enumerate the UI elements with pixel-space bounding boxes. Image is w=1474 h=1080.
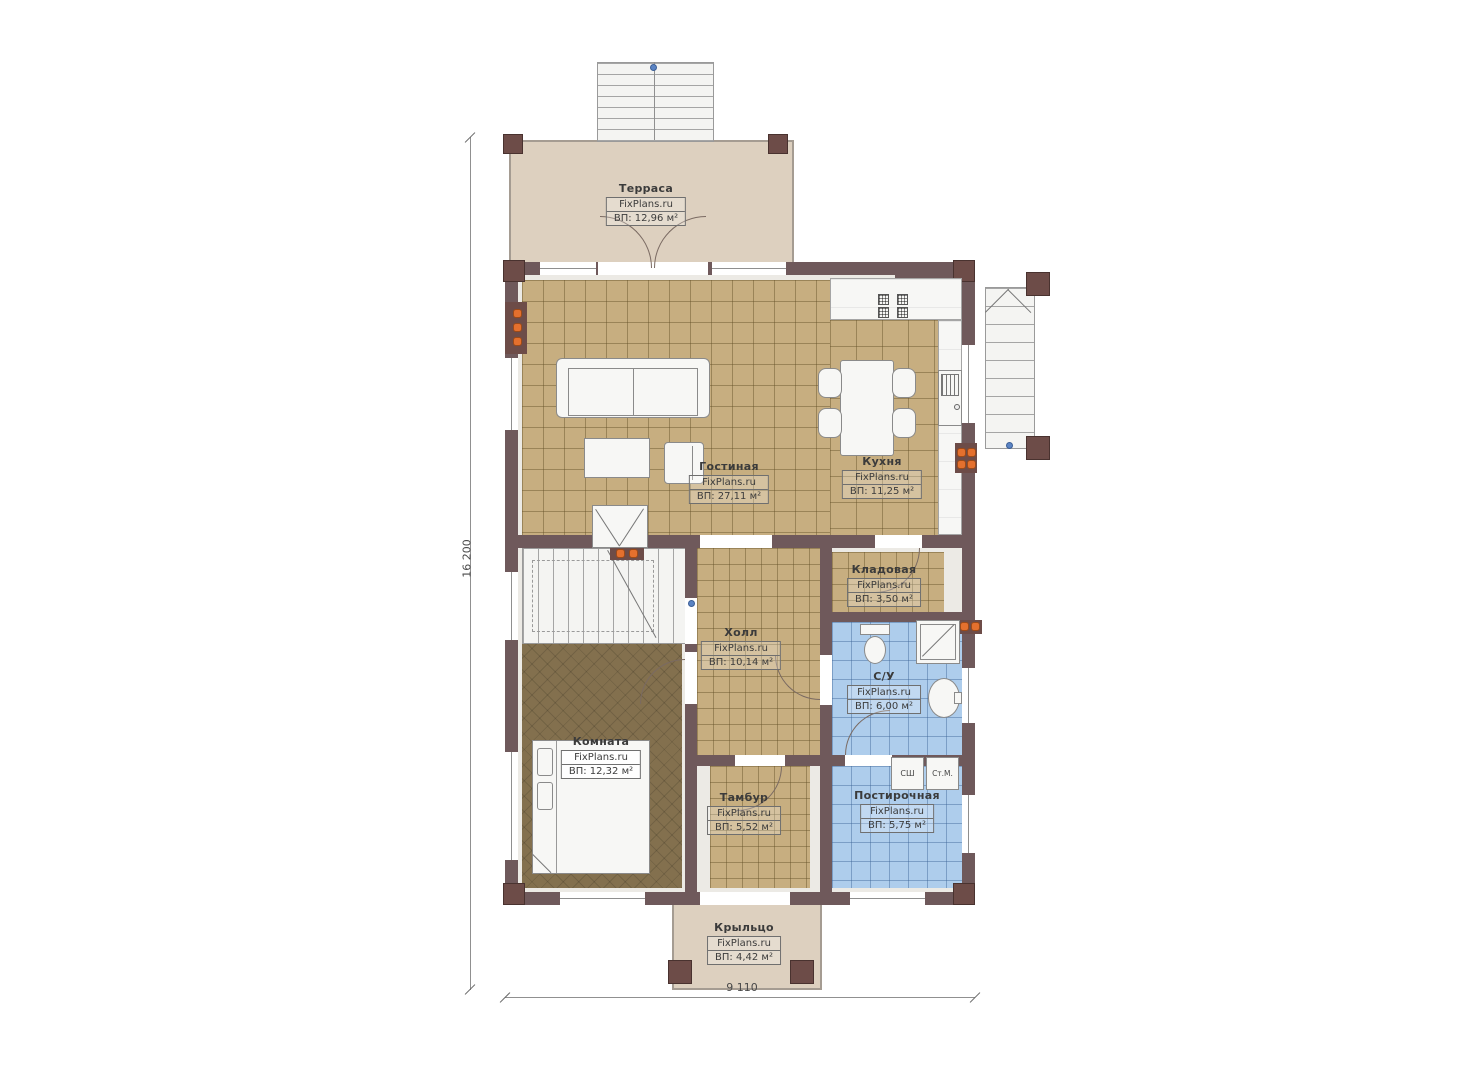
room-area: ВП: 11,25 м² — [843, 485, 921, 498]
radiator-dot — [960, 622, 969, 631]
watermark: FixPlans.ru — [848, 579, 920, 593]
dimension-label-width: 9 110 — [712, 981, 772, 994]
stair-marker-dot — [688, 600, 695, 607]
corner-post — [953, 883, 975, 905]
toilet-bowl — [864, 636, 886, 664]
room-name: Постирочная — [854, 789, 940, 802]
window — [540, 262, 596, 275]
watermark: FixPlans.ru — [708, 937, 780, 951]
stove-burner-icon — [878, 307, 889, 318]
room-name: Терраса — [606, 182, 686, 195]
dining-chair — [818, 408, 842, 438]
sofa-cushion-divider — [633, 368, 634, 416]
window — [962, 668, 975, 723]
window — [850, 892, 925, 905]
dryer-label: СШ — [900, 769, 914, 778]
room-label-bedroom: Комната FixPlans.ru ВП: 12,32 м² — [561, 735, 641, 779]
pillow — [537, 748, 553, 776]
floor-plan: СШ Ст.М. Терраса FixPlans.ru ВП: 12,96 м… — [0, 0, 1474, 1080]
corner-post — [503, 260, 525, 282]
dining-chair — [892, 408, 916, 438]
inner-wall-hall-right — [820, 548, 832, 892]
watermark: FixPlans.ru — [607, 198, 685, 212]
window — [962, 345, 975, 423]
watermark: FixPlans.ru — [562, 751, 640, 765]
watermark: FixPlans.ru — [848, 686, 920, 700]
room-label-living: Гостиная FixPlans.ru ВП: 27,11 м² — [689, 460, 769, 504]
room-label-hall: Холл FixPlans.ru ВП: 10,14 м² — [701, 626, 781, 670]
room-area: ВП: 6,00 м² — [848, 700, 920, 713]
room-label-kitchen: Кухня FixPlans.ru ВП: 11,25 м² — [842, 455, 922, 499]
porch-post — [790, 960, 814, 984]
watermark: FixPlans.ru — [690, 476, 768, 490]
dining-chair — [818, 368, 842, 398]
radiator-dot — [513, 337, 522, 346]
staircase-upper-flight — [532, 560, 654, 632]
window — [505, 358, 518, 430]
dimension-label-height: 16 200 — [461, 529, 474, 589]
radiator-dot — [616, 549, 625, 558]
radiator-dot — [513, 309, 522, 318]
porch-post — [668, 960, 692, 984]
external-stairs-post — [1026, 436, 1050, 460]
room-name: Крыльцо — [707, 921, 781, 934]
entry-door-opening — [700, 892, 790, 905]
watermark: FixPlans.ru — [861, 805, 933, 819]
window — [712, 262, 786, 275]
laundry-door-opening — [845, 755, 892, 766]
room-name: Холл — [701, 626, 781, 639]
room-label-tambur: Тамбур FixPlans.ru ВП: 5,52 м² — [707, 791, 781, 835]
room-name: Кухня — [842, 455, 922, 468]
kitchen-counter-top — [830, 278, 962, 320]
bed-headboard-line — [556, 741, 557, 873]
room-area: ВП: 10,14 м² — [702, 656, 780, 669]
radiator-dot — [957, 460, 966, 469]
dining-table — [840, 360, 894, 456]
tambur-door-opening — [735, 755, 785, 766]
bedroom-door-opening — [685, 652, 697, 704]
terrace-stairs-centerline — [654, 62, 655, 140]
window — [560, 892, 645, 905]
terrace-post — [503, 134, 523, 154]
external-stairs-post — [1026, 272, 1050, 296]
pillow — [537, 782, 553, 810]
hall-living-opening — [700, 535, 772, 548]
storage-door-opening — [875, 535, 922, 548]
room-area: ВП: 27,11 м² — [690, 490, 768, 503]
room-name: Тамбур — [707, 791, 781, 804]
radiator-dot — [967, 448, 976, 457]
entry-marker-dot — [650, 64, 657, 71]
radiator-dot — [629, 549, 638, 558]
room-name: Комната — [561, 735, 641, 748]
dimension-line-bottom — [505, 997, 975, 998]
terrace-stairs — [597, 62, 714, 142]
dining-chair — [892, 368, 916, 398]
coffee-table — [584, 438, 650, 478]
window — [505, 752, 518, 860]
shower-inner — [920, 624, 956, 660]
room-label-porch: Крыльцо FixPlans.ru ВП: 4,42 м² — [707, 921, 781, 965]
corner-post — [503, 883, 525, 905]
room-area: ВП: 4,42 м² — [708, 951, 780, 964]
stove-burner-icon — [897, 307, 908, 318]
kitchen-faucet — [954, 404, 960, 410]
window — [505, 572, 518, 640]
room-name: С/У — [847, 670, 921, 683]
room-label-storage: Кладовая FixPlans.ru ВП: 3,50 м² — [847, 563, 921, 607]
room-label-bathroom: С/У FixPlans.ru ВП: 6,00 м² — [847, 670, 921, 714]
room-label-laundry: Постирочная FixPlans.ru ВП: 5,75 м² — [854, 789, 940, 833]
room-label-terrace: Терраса FixPlans.ru ВП: 12,96 м² — [606, 182, 686, 226]
washer: Ст.М. — [926, 757, 959, 790]
terrace-post — [768, 134, 788, 154]
watermark: FixPlans.ru — [843, 471, 921, 485]
kitchen-counter-right — [938, 320, 962, 535]
kitchen-sink-hatch — [941, 374, 959, 396]
room-area: ВП: 12,96 м² — [607, 212, 685, 225]
room-area: ВП: 5,75 м² — [861, 819, 933, 832]
watermark: FixPlans.ru — [708, 807, 780, 821]
radiator-dot — [971, 622, 980, 631]
room-area: ВП: 5,52 м² — [708, 821, 780, 834]
room-name: Гостиная — [689, 460, 769, 473]
room-area: ВП: 12,32 м² — [562, 765, 640, 778]
stove-burner-icon — [878, 294, 889, 305]
window — [962, 795, 975, 853]
room-name: Кладовая — [847, 563, 921, 576]
watermark: FixPlans.ru — [702, 642, 780, 656]
radiator-dot — [957, 448, 966, 457]
washer-label: Ст.М. — [932, 769, 953, 778]
bathroom-door-opening — [820, 655, 832, 705]
toilet-tank — [860, 624, 890, 635]
bathroom-faucet — [954, 692, 962, 704]
dryer: СШ — [891, 757, 924, 790]
entry-marker-dot — [1006, 442, 1013, 449]
radiator-dot — [513, 323, 522, 332]
stove-burner-icon — [897, 294, 908, 305]
room-area: ВП: 3,50 м² — [848, 593, 920, 606]
radiator-dot — [967, 460, 976, 469]
external-stairs — [985, 287, 1035, 449]
